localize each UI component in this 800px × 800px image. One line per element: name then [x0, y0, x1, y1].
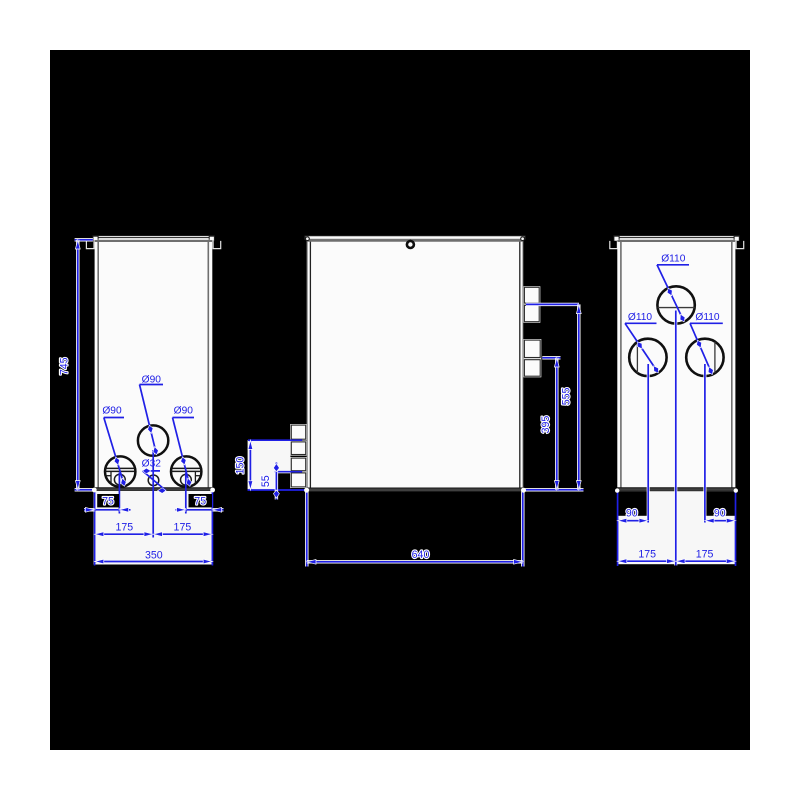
svg-text:75: 75: [194, 495, 206, 507]
svg-text:Ø90: Ø90: [174, 406, 194, 417]
svg-text:Ø110: Ø110: [661, 254, 685, 265]
svg-text:90: 90: [714, 508, 726, 520]
svg-text:90: 90: [626, 508, 638, 520]
svg-text:555: 555: [561, 387, 573, 405]
svg-text:395: 395: [540, 416, 552, 434]
svg-text:150: 150: [235, 457, 247, 475]
svg-text:640: 640: [412, 549, 430, 561]
svg-text:Ø110: Ø110: [695, 312, 719, 323]
svg-text:Ø32: Ø32: [142, 458, 162, 469]
svg-text:175: 175: [638, 548, 656, 560]
svg-text:75: 75: [102, 495, 114, 507]
svg-text:175: 175: [115, 521, 133, 533]
svg-text:175: 175: [696, 548, 714, 560]
svg-text:Ø110: Ø110: [628, 312, 652, 323]
svg-text:175: 175: [174, 521, 192, 533]
svg-text:55: 55: [260, 475, 272, 487]
svg-text:Ø90: Ø90: [102, 406, 122, 417]
svg-text:350: 350: [145, 549, 163, 561]
svg-text:745: 745: [59, 357, 71, 375]
